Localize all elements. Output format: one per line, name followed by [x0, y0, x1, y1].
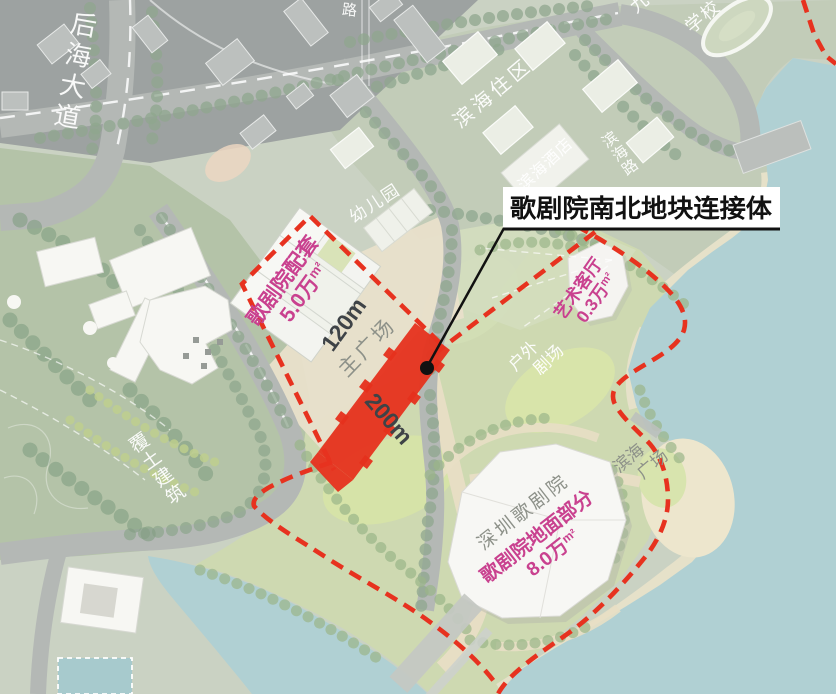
partial-road-label: 路	[341, 1, 358, 19]
callout-anchor-dot	[420, 361, 434, 375]
site-plan-screenshot: 后海大道 路 滨海路 滨海住区 九 学校 滨海酒店 幼儿园 覆土建筑 户外 剧场…	[0, 0, 836, 694]
site-plan-map: 后海大道 路 滨海路 滨海住区 九 学校 滨海酒店 幼儿园 覆土建筑 户外 剧场…	[0, 0, 836, 694]
callout-label: 歌剧院南北地块连接体	[510, 194, 773, 223]
